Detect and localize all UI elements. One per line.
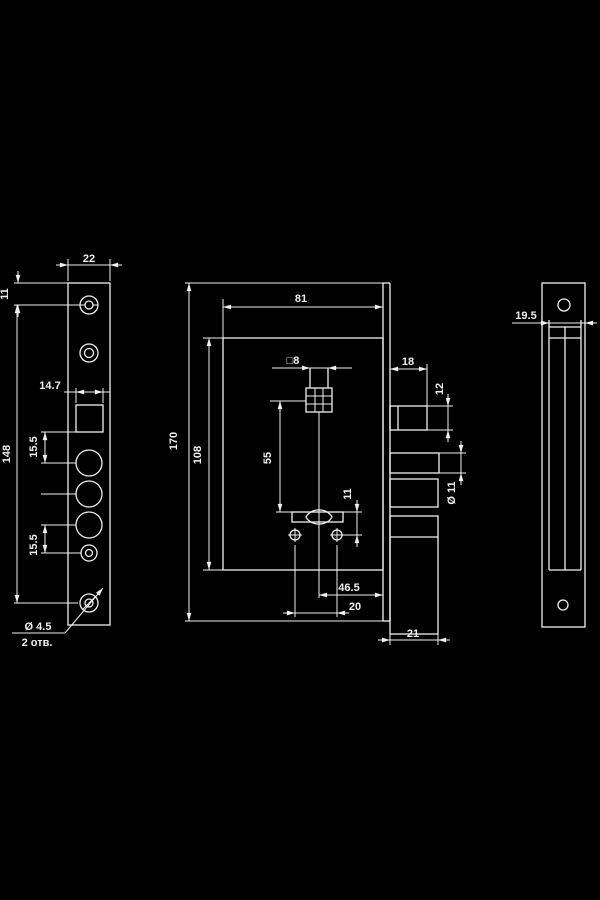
top-screw-hole bbox=[80, 296, 98, 314]
dim-case-height: 108 bbox=[192, 446, 204, 464]
dim-pitch-upper: 15.5 bbox=[28, 436, 40, 457]
dim-faceplate-height: 170 bbox=[168, 432, 180, 450]
bottom-bracket bbox=[390, 516, 438, 634]
dim-strike-width: 19.5 bbox=[515, 310, 536, 322]
dim-latch-height: 12 bbox=[434, 383, 446, 395]
deadbolt-holes bbox=[76, 450, 102, 538]
strike-bottom-screw-hole bbox=[558, 600, 568, 610]
dim-pitch-lower: 15.5 bbox=[28, 534, 40, 555]
deadbolt-pin-upper bbox=[390, 453, 439, 473]
strike-plate-view: 19.5 bbox=[512, 283, 597, 627]
dim-spindle-to-cylinder: 55 bbox=[262, 452, 274, 464]
faceplate-front-view: 22 11 148 14.7 15.5 15.5 bbox=[0, 253, 122, 649]
technical-drawing: 22 11 148 14.7 15.5 15.5 bbox=[0, 0, 600, 900]
dim-bolt-dia: Ø 11 bbox=[446, 481, 458, 504]
middle-view-dimensions: 170 108 81 □8 55 11 18 bbox=[168, 283, 466, 645]
right-view-dimensions: 19.5 bbox=[512, 310, 597, 323]
latch-bolt bbox=[390, 406, 427, 430]
dim-cylinder-pin-offset: 11 bbox=[342, 488, 354, 500]
dim-fixing-hole-spacing: 20 bbox=[349, 601, 361, 613]
spindle-hub bbox=[306, 368, 332, 412]
strike-slot bbox=[549, 320, 581, 570]
dim-latch-throw: 18 bbox=[402, 356, 414, 368]
second-hole bbox=[80, 344, 98, 362]
dim-backset: 46.5 bbox=[338, 582, 359, 594]
faceplate-outline bbox=[68, 283, 110, 625]
dim-bottom-throw: 21 bbox=[407, 628, 419, 640]
strike-top-screw-hole bbox=[558, 299, 570, 311]
dim-top-hole-offset: 11 bbox=[0, 288, 11, 300]
lock-side-view: 170 108 81 □8 55 11 18 bbox=[168, 283, 466, 645]
dim-mounting-hole-spacing: 148 bbox=[1, 445, 13, 463]
latch-cutout bbox=[76, 405, 103, 432]
dim-plate-width: 22 bbox=[83, 253, 95, 265]
dim-latch-cutout-width: 14.7 bbox=[39, 380, 60, 392]
deadbolt-pin-lower bbox=[390, 479, 438, 507]
cylinder-bar bbox=[292, 512, 343, 522]
dim-screw-hole-dia: Ø 4.5 bbox=[25, 621, 52, 633]
cylinder-mechanism bbox=[288, 510, 344, 542]
left-view-dimensions: 22 11 148 14.7 15.5 15.5 bbox=[0, 253, 122, 649]
faceplate-edge bbox=[383, 283, 390, 621]
dim-spindle-square: □8 bbox=[287, 355, 300, 367]
label-screw-hole-count: 2 отв. bbox=[22, 637, 53, 649]
dim-case-depth: 81 bbox=[295, 293, 307, 305]
cylinder-pin-hole bbox=[81, 545, 97, 561]
